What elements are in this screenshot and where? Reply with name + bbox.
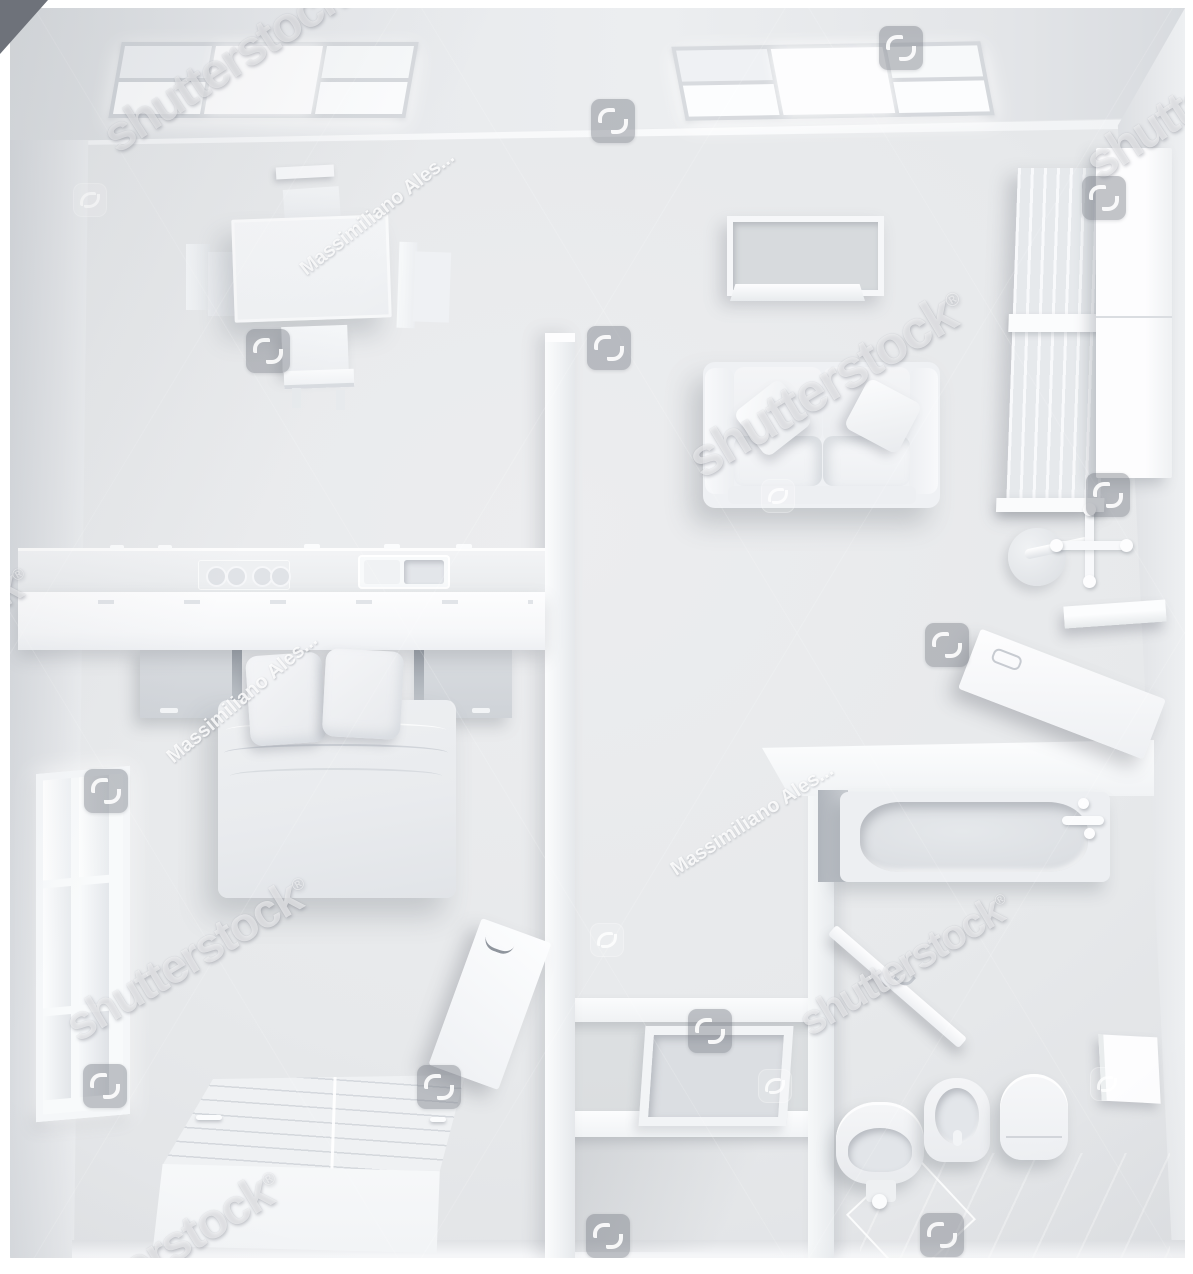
coat-stand-hook-ball	[1050, 539, 1063, 552]
kitchen-sink	[358, 555, 450, 589]
light-pane	[321, 46, 414, 78]
chair-back-bar	[276, 164, 335, 179]
tub-faucet-knob	[1078, 798, 1089, 809]
bidet-spout	[953, 1130, 962, 1146]
tub-basin	[860, 802, 1088, 872]
shutterstock-logo-icon	[587, 326, 631, 370]
door-handle	[482, 933, 515, 957]
bed-pillow	[322, 648, 404, 740]
chair-leg	[336, 390, 345, 410]
light-pane	[315, 82, 408, 114]
bidet	[924, 1078, 992, 1170]
tall-cabinet	[1096, 148, 1172, 478]
basin-bowl	[848, 1128, 912, 1172]
sofa-armrest-right	[909, 368, 938, 494]
chest-handle	[196, 1115, 222, 1120]
cooktop-burner	[270, 566, 291, 587]
bathroom-window	[1098, 1034, 1160, 1103]
margin-bottom	[0, 1258, 1193, 1274]
bedroom-door-open	[429, 918, 552, 1090]
cabinet-door-seam	[1096, 316, 1172, 318]
bed-pillow	[245, 651, 327, 746]
window-pane	[79, 883, 109, 1006]
logo-arc	[601, 934, 617, 948]
kitchen-counter-top	[18, 548, 545, 592]
kitchen-counter-front	[18, 592, 545, 650]
vestibule-floor-shade	[575, 1137, 818, 1252]
bed	[210, 648, 470, 908]
toilet-lid	[1000, 1074, 1068, 1160]
chair-backrest	[186, 244, 210, 310]
toilet-seat-seam	[1006, 1136, 1062, 1138]
chest-top	[150, 1075, 465, 1175]
light-pane	[886, 45, 983, 78]
shutterstock-logo-icon	[590, 923, 624, 957]
cabinet-handle	[160, 708, 178, 713]
apartment-scene: shutterstock®shutterstock®shutterstock®s…	[10, 8, 1185, 1258]
sofa-front-rail	[728, 486, 916, 504]
registered-mark: ®	[992, 891, 1010, 910]
coat-stand-hook-ball	[1083, 503, 1096, 516]
stock-photo-3d-floorplan: shutterstock®shutterstock®shutterstock®s…	[0, 0, 1193, 1274]
coat-stand	[1000, 503, 1150, 603]
light-pane	[119, 46, 212, 78]
margin-top	[0, 0, 1193, 8]
cabinet-handle	[456, 544, 472, 549]
coat-stand-hook-ball	[1120, 539, 1133, 552]
light-pane	[676, 49, 773, 82]
logo-arc	[607, 346, 624, 361]
cabinet-handle	[304, 544, 320, 549]
sofa	[703, 362, 940, 508]
hall-north-wall	[557, 998, 818, 1022]
entrance-floor-mat	[639, 1026, 794, 1126]
sofa-armrest-left	[705, 368, 734, 494]
light-pane	[893, 80, 990, 113]
tub-faucet-spout	[1062, 816, 1104, 825]
cooktop-burner	[226, 566, 247, 587]
cabinet-handle	[384, 544, 400, 549]
sink-drainboard	[364, 560, 400, 584]
duvet-fold-line	[230, 768, 442, 784]
wall-top-cap	[545, 333, 575, 342]
duvet-fold-line	[224, 744, 448, 762]
margin-left	[0, 0, 10, 1274]
logo-arc	[597, 932, 613, 946]
bathtub	[818, 784, 1110, 884]
registered-mark: ®	[941, 288, 964, 313]
ceiling-light-panel-right	[671, 41, 994, 120]
light-pane	[204, 46, 323, 114]
sink-basin	[404, 560, 444, 584]
tub-faucet-knob	[1084, 828, 1095, 839]
light-pane-section	[886, 45, 990, 113]
light-pane-section	[676, 49, 780, 117]
door-handle	[893, 967, 916, 989]
window-pane	[79, 775, 109, 878]
bathroom-north-door-open	[958, 629, 1166, 760]
drawer-handle-marks	[28, 600, 533, 604]
cabinet-handle	[110, 545, 124, 550]
cabinet-handle	[472, 708, 490, 713]
bathroom-west-door-open	[828, 925, 967, 1048]
chair-leg	[292, 388, 301, 408]
coat-stand-hook-ball	[1083, 575, 1096, 588]
cabinet-handle	[158, 545, 172, 550]
dining-chair-east	[398, 240, 452, 332]
toilet	[1000, 1074, 1070, 1168]
cooktop-burner	[206, 566, 227, 587]
tv-shelf-ledge	[730, 284, 865, 301]
shutterstock-logo-icon	[925, 623, 969, 667]
light-pane	[113, 82, 206, 114]
window-pane	[43, 886, 71, 1008]
light-pane	[771, 47, 895, 115]
coat-stand-arm-horizontal	[1056, 541, 1126, 550]
chair-seat	[413, 251, 451, 322]
window-left-wall	[36, 766, 130, 1122]
logo-arc	[945, 643, 962, 658]
ceiling-light-panel-left	[108, 42, 418, 118]
logo-arc	[932, 632, 949, 647]
chair-seat	[281, 325, 349, 373]
basin-faucet	[872, 1194, 887, 1209]
door-handle-slot	[990, 647, 1023, 672]
light-pane-section	[113, 46, 212, 114]
chest-handle	[430, 1117, 446, 1122]
washbasin	[836, 1102, 932, 1212]
light-pane	[683, 84, 780, 117]
window-pane	[79, 1011, 109, 1098]
margin-right	[1185, 0, 1193, 1274]
chair-back-bar	[284, 369, 355, 389]
window-pane	[43, 1014, 71, 1100]
logo-arc	[253, 338, 270, 353]
storage-chest	[150, 1075, 465, 1253]
logo-arc	[594, 335, 611, 350]
dining-table	[231, 214, 391, 322]
dining-chair-south	[278, 326, 366, 416]
window-pane	[43, 778, 71, 880]
light-pane-section	[315, 46, 414, 114]
partition-wall	[545, 333, 575, 1258]
